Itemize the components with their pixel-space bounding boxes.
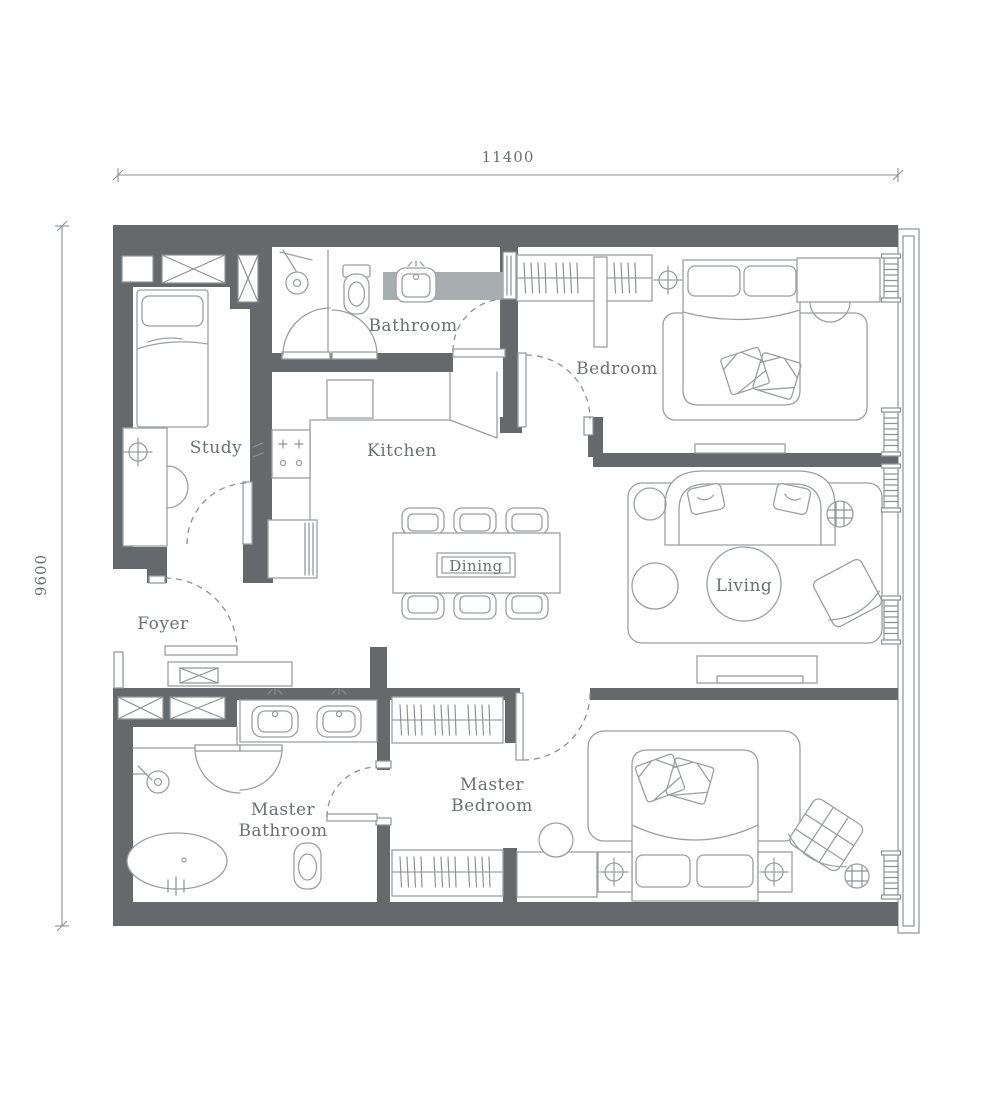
ceiling-light-icon xyxy=(654,266,682,294)
room-study: Study xyxy=(123,290,252,546)
sofa xyxy=(665,471,835,545)
bathroom-door xyxy=(453,299,505,357)
foyer-label: Foyer xyxy=(137,614,189,634)
double-bed xyxy=(683,260,802,405)
master-bedroom-label-1: Master xyxy=(460,775,525,795)
vanity-desk xyxy=(517,823,597,897)
master-bedroom-door xyxy=(516,693,590,760)
floor-plan-page: 11400 9600 xyxy=(0,0,1000,1100)
master-bed xyxy=(632,750,758,901)
oven xyxy=(327,380,373,418)
bedroom-console xyxy=(695,444,785,453)
single-bed xyxy=(137,290,208,427)
shower-doors xyxy=(282,308,377,359)
vent-shaft xyxy=(503,252,516,299)
window-frame xyxy=(898,229,919,933)
living-armchair xyxy=(810,557,886,630)
study-chair xyxy=(167,466,188,508)
side-table xyxy=(634,488,666,520)
dimension-height-label: 9600 xyxy=(32,554,50,596)
room-bedroom: Bedroom xyxy=(517,255,880,453)
room-bathroom: Bathroom xyxy=(280,250,505,359)
dimension-left: 9600 xyxy=(32,221,69,931)
side-table xyxy=(632,563,678,609)
kitchen-label: Kitchen xyxy=(367,441,437,461)
toilet xyxy=(343,265,370,314)
master-bathroom-label-1: Master xyxy=(251,800,316,820)
dining-chair xyxy=(454,593,496,619)
living-label: Living xyxy=(716,576,773,596)
master-bathroom-door xyxy=(327,767,377,821)
fridge xyxy=(268,520,317,578)
master-bedroom-label-2: Bedroom xyxy=(451,796,533,816)
bathroom-sink xyxy=(396,261,436,302)
shower-doors xyxy=(195,745,282,793)
nightstand xyxy=(598,852,632,892)
room-foyer: Foyer xyxy=(137,578,292,686)
dining-chair xyxy=(506,593,548,619)
room-dining: Dining xyxy=(393,508,560,619)
bedroom-wardrobe xyxy=(517,255,652,347)
toilet xyxy=(294,843,321,889)
floor-plan-drawing: 11400 9600 xyxy=(0,0,1000,1100)
room-master-bedroom: Master Bedroom xyxy=(392,693,869,901)
bathroom-label: Bathroom xyxy=(368,316,457,336)
dining-chair xyxy=(506,508,548,534)
dining-chair xyxy=(402,508,444,534)
nightstand xyxy=(758,852,792,892)
foyer-console xyxy=(168,662,292,686)
coffee-table: Living xyxy=(707,547,781,621)
dimension-width-label: 11400 xyxy=(482,148,535,166)
study-label: Study xyxy=(190,438,242,458)
shower-head xyxy=(280,250,312,294)
dimension-top: 11400 xyxy=(113,148,903,182)
study-door xyxy=(187,482,252,544)
room-living: Living xyxy=(628,471,885,683)
bedroom-label: Bedroom xyxy=(576,359,658,379)
master-wardrobe-top xyxy=(392,697,503,743)
master-bathroom-label-2: Bathroom xyxy=(238,821,327,841)
shower-head xyxy=(133,766,169,793)
side-table xyxy=(845,864,869,888)
dining-chair xyxy=(402,593,444,619)
cooktop xyxy=(272,430,310,478)
bathtub xyxy=(127,833,227,895)
master-wardrobe-bottom xyxy=(392,850,503,896)
dining-chair xyxy=(454,508,496,534)
tv-console xyxy=(697,656,817,683)
dining-label: Dining xyxy=(449,557,503,575)
